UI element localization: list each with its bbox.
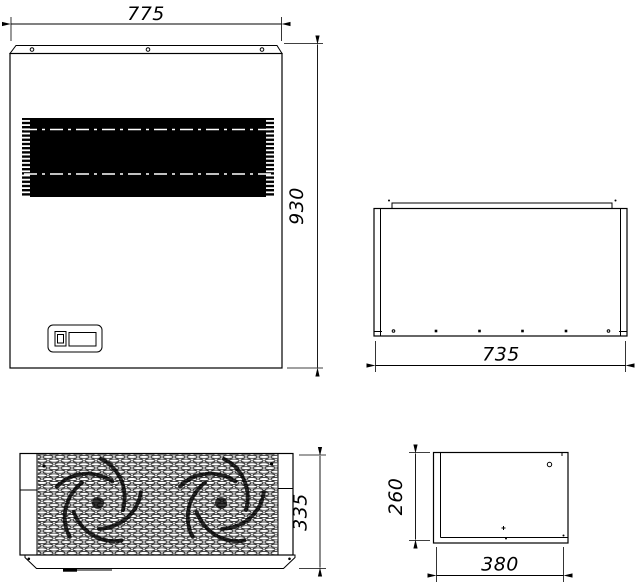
dim-top-width: 735 (376, 341, 626, 372)
mesh-screw-left (42, 464, 45, 467)
power-switch-rocker[interactable] (58, 335, 64, 344)
top-fastener-row (392, 330, 610, 333)
end-hole (547, 462, 551, 466)
end-center-mark (502, 526, 506, 530)
dim-front-width: 775 (11, 3, 282, 41)
end-dot-bottom-right (563, 535, 565, 537)
dim-end-height: 260 (385, 453, 430, 541)
dim-label-735: 735 (482, 344, 520, 366)
dim-label-930: 930 (286, 187, 308, 225)
dim-end-width: 380 (437, 547, 564, 582)
fan-guard-mesh (38, 454, 277, 554)
top-dot-left (388, 200, 390, 202)
display-window (69, 333, 96, 347)
front-view: 775 930 (10, 3, 323, 368)
base-pan (25, 555, 295, 572)
dim-label-260: 260 (385, 478, 407, 516)
dim-front-height: 930 (284, 44, 323, 369)
base-pan-outline (25, 555, 295, 569)
control-panel (48, 325, 102, 352)
flange-hole-center (146, 48, 150, 52)
front-cabinet-body (10, 54, 282, 369)
top-lid-lip (392, 203, 612, 209)
top-view: 735 (374, 200, 627, 373)
flange-hole-right (260, 48, 264, 52)
flange-hole-left (30, 48, 34, 52)
dim-label-380: 380 (481, 554, 519, 576)
front-air-grille (22, 118, 274, 197)
power-switch[interactable] (55, 332, 66, 347)
dim-label-775: 775 (127, 3, 165, 25)
drawing-sheet: 775 930 73 (0, 0, 637, 585)
dim-label-335: 335 (290, 493, 312, 531)
end-dot-bottom-center (505, 538, 507, 540)
drain-tab (63, 569, 77, 572)
base-screw-left (28, 558, 31, 561)
end-view: 260 380 (385, 453, 568, 583)
bottom-view: 335 (20, 454, 326, 572)
base-screw-right (288, 558, 291, 561)
technical-drawing-canvas: 775 930 73 (0, 0, 637, 585)
mesh-screw-right (270, 462, 273, 465)
dim-bottom-height: 335 (290, 455, 327, 569)
top-dot-right (615, 200, 617, 202)
control-panel-bezel (48, 325, 102, 352)
top-body (374, 209, 627, 337)
